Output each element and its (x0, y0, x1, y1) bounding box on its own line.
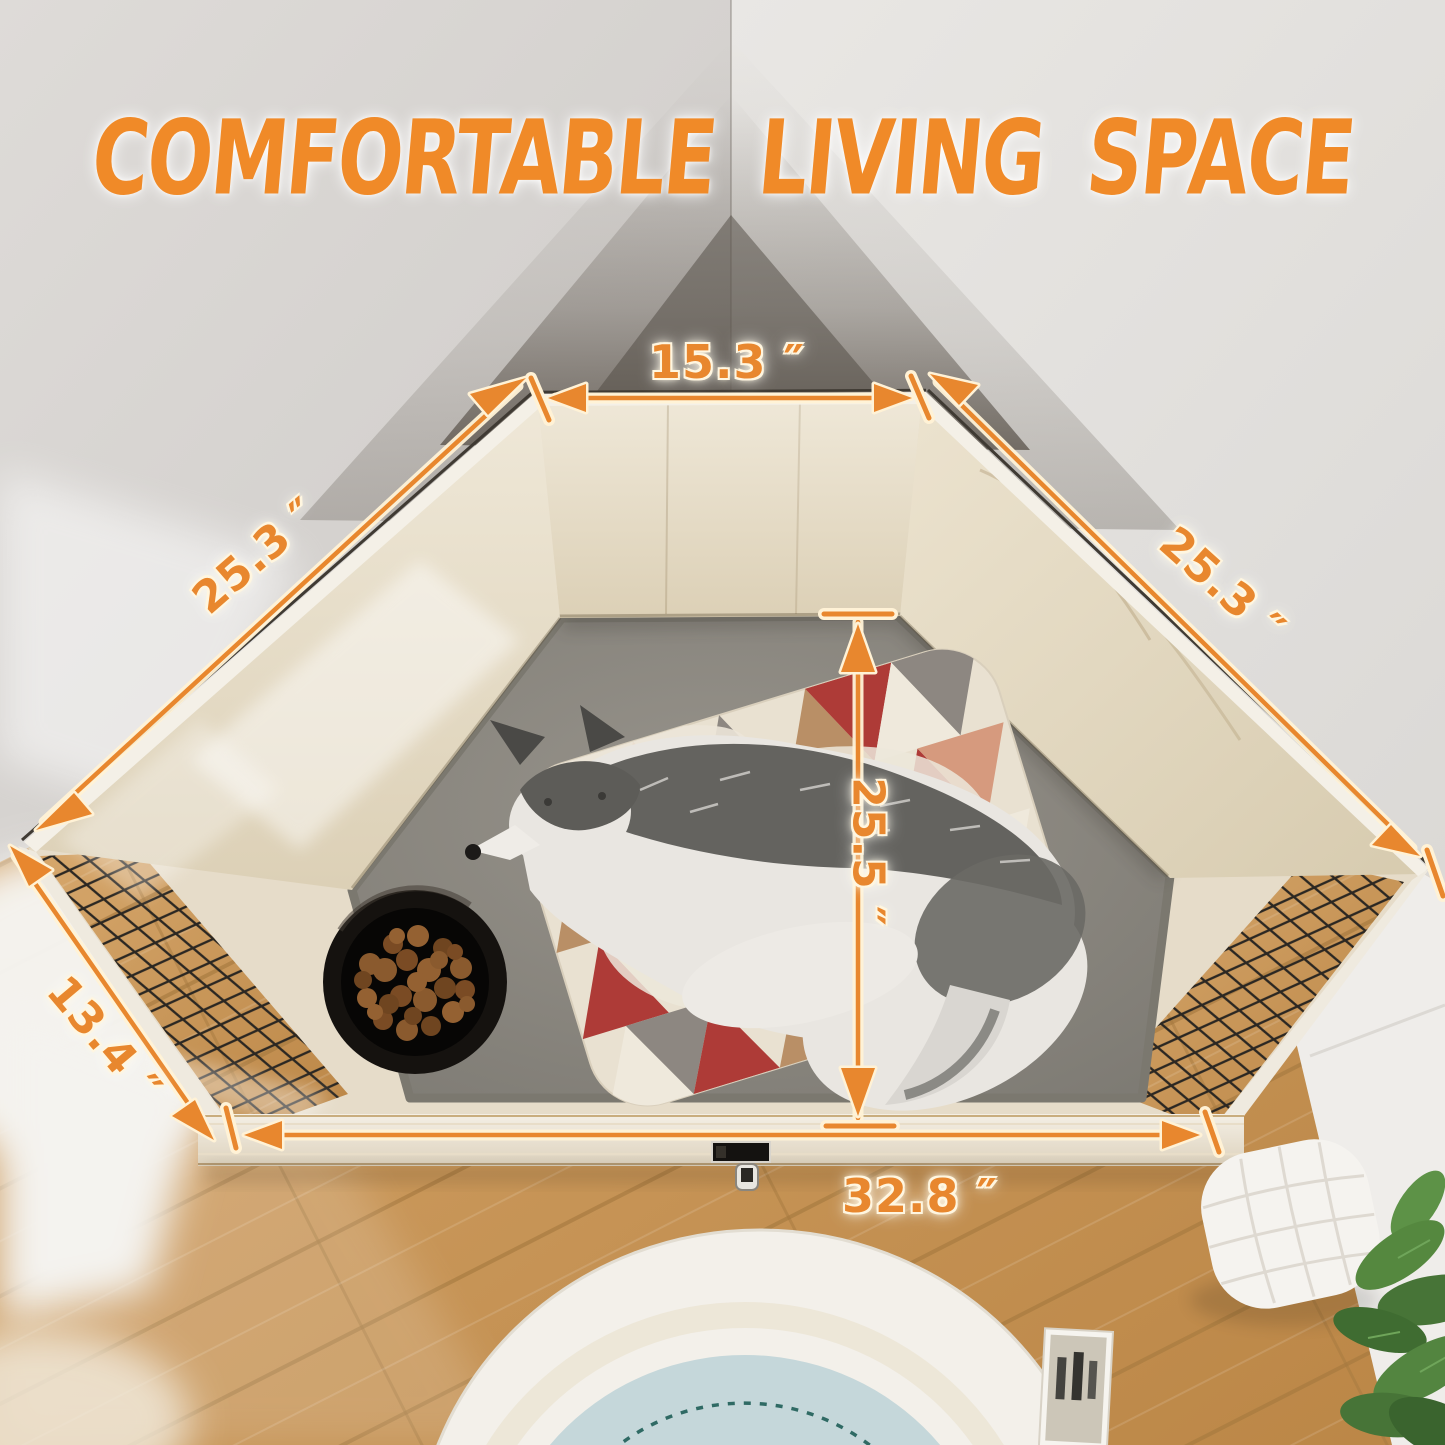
product-image: COMFORTABLE LIVING SPACE 15.3 ″ 25.3 ″ 2… (0, 0, 1445, 1445)
dim-label-top-width: 15.3 ″ (649, 335, 805, 389)
photo-card (1039, 1328, 1113, 1445)
dim-label-inner-depth: 25.5 ″ (843, 777, 894, 927)
page-title: COMFORTABLE LIVING SPACE (87, 98, 1358, 218)
wood-panel-back (538, 398, 922, 618)
dim-label-front-width: 32.8 ″ (842, 1169, 998, 1223)
